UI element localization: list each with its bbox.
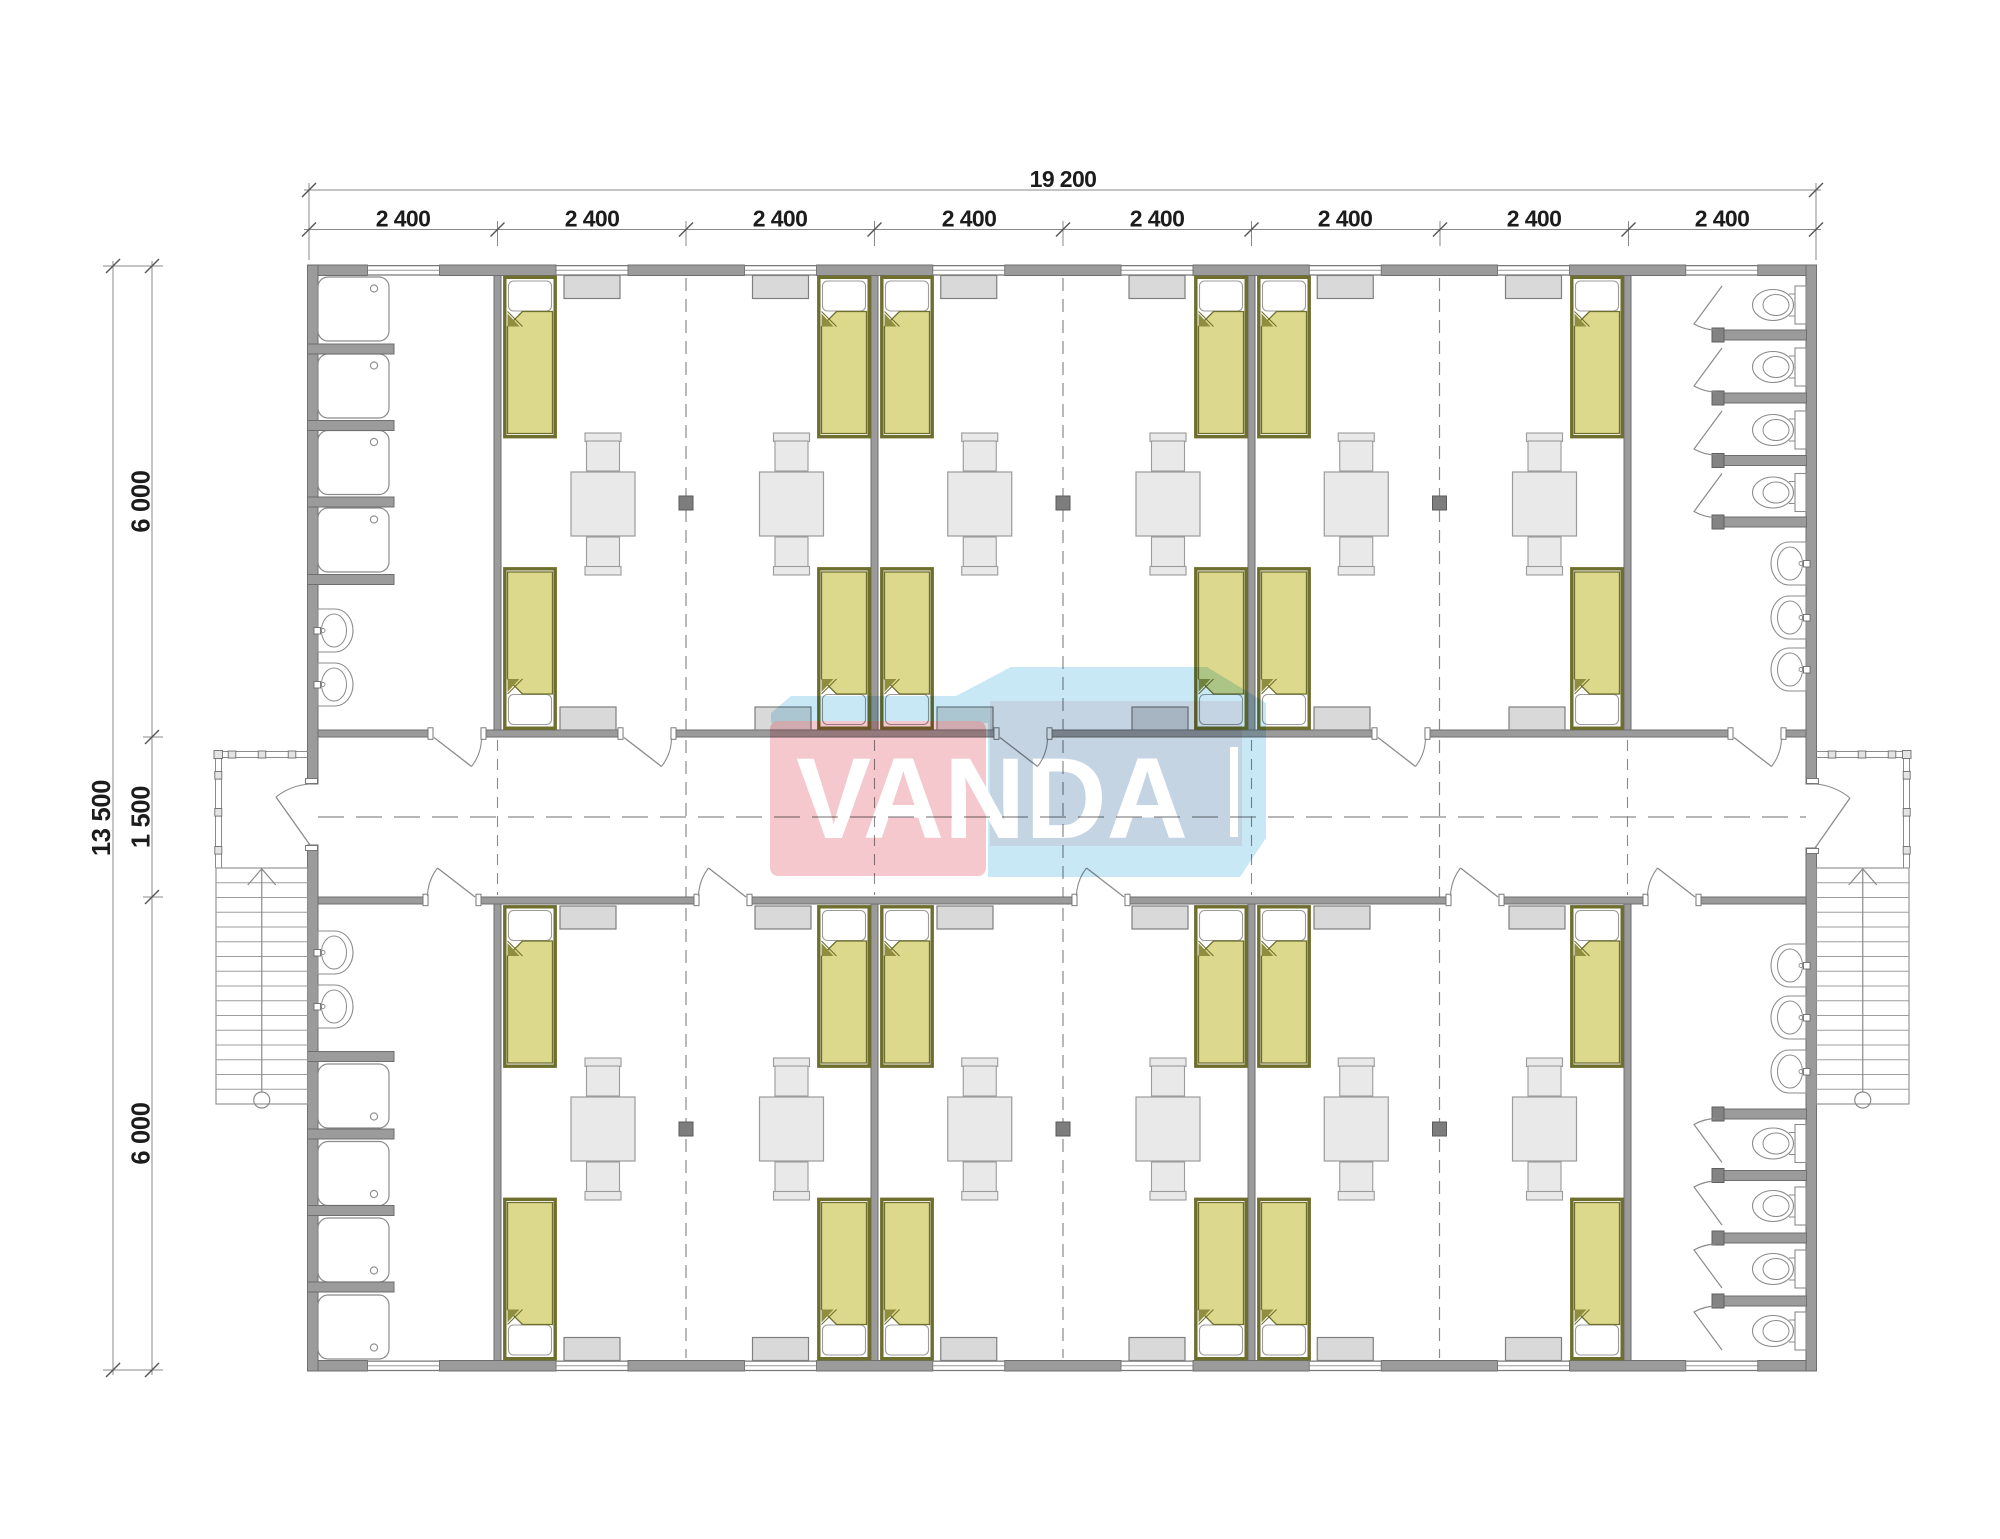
svg-text:1 500: 1 500 [128,786,156,848]
svg-text:2 400: 2 400 [753,206,808,232]
svg-text:2 400: 2 400 [565,206,620,232]
svg-text:2 400: 2 400 [942,206,997,232]
svg-text:2 400: 2 400 [1695,206,1750,232]
svg-text:6 000: 6 000 [128,470,156,532]
svg-text:2 400: 2 400 [1318,206,1373,232]
svg-text:VANDA: VANDA [796,735,1188,863]
svg-text:6 000: 6 000 [128,1102,156,1164]
svg-text:2 400: 2 400 [376,206,431,232]
svg-text:13 500: 13 500 [88,780,116,856]
svg-text:2 400: 2 400 [1507,206,1562,232]
svg-text:19 200: 19 200 [1030,166,1097,192]
svg-text:2 400: 2 400 [1130,206,1185,232]
